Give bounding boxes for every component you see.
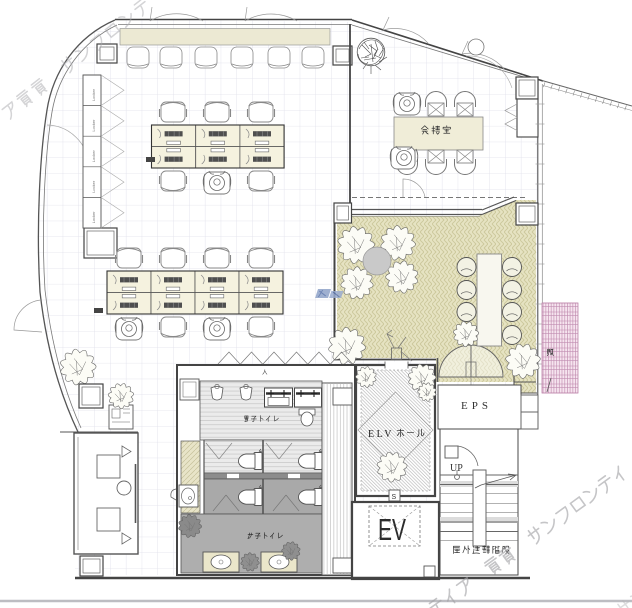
svg-text:Locker: Locker [91, 211, 96, 224]
svg-text:ELV: ELV [368, 429, 394, 440]
svg-text:Locker: Locker [91, 88, 96, 101]
svg-text:Locker: Locker [91, 180, 96, 193]
svg-text:EPS: EPS [461, 400, 492, 412]
svg-text:EV: EV [378, 512, 406, 547]
svg-text:UP: UP [450, 463, 463, 474]
svg-text:Locker: Locker [91, 119, 96, 132]
svg-text:Locker: Locker [91, 150, 96, 163]
svg-text:S: S [392, 494, 397, 501]
